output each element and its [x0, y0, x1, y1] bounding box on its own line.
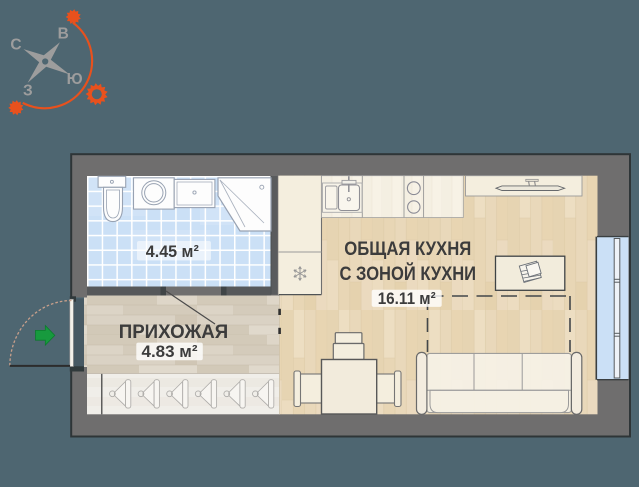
svg-text:З: З [23, 82, 33, 99]
svg-text:С ЗОНОЙ КУХНИ: С ЗОНОЙ КУХНИ [339, 263, 476, 285]
svg-text:В: В [58, 25, 69, 42]
svg-text:4.45 м²: 4.45 м² [146, 242, 199, 261]
svg-text:ОБЩАЯ КУХНЯ: ОБЩАЯ КУХНЯ [344, 239, 471, 260]
svg-text:С: С [10, 37, 21, 54]
svg-text:ПРИХОЖАЯ: ПРИХОЖАЯ [119, 322, 229, 343]
svg-text:16.11 м²: 16.11 м² [378, 289, 436, 308]
svg-text:4.83 м²: 4.83 м² [142, 342, 198, 361]
svg-text:Ю: Ю [67, 71, 83, 88]
